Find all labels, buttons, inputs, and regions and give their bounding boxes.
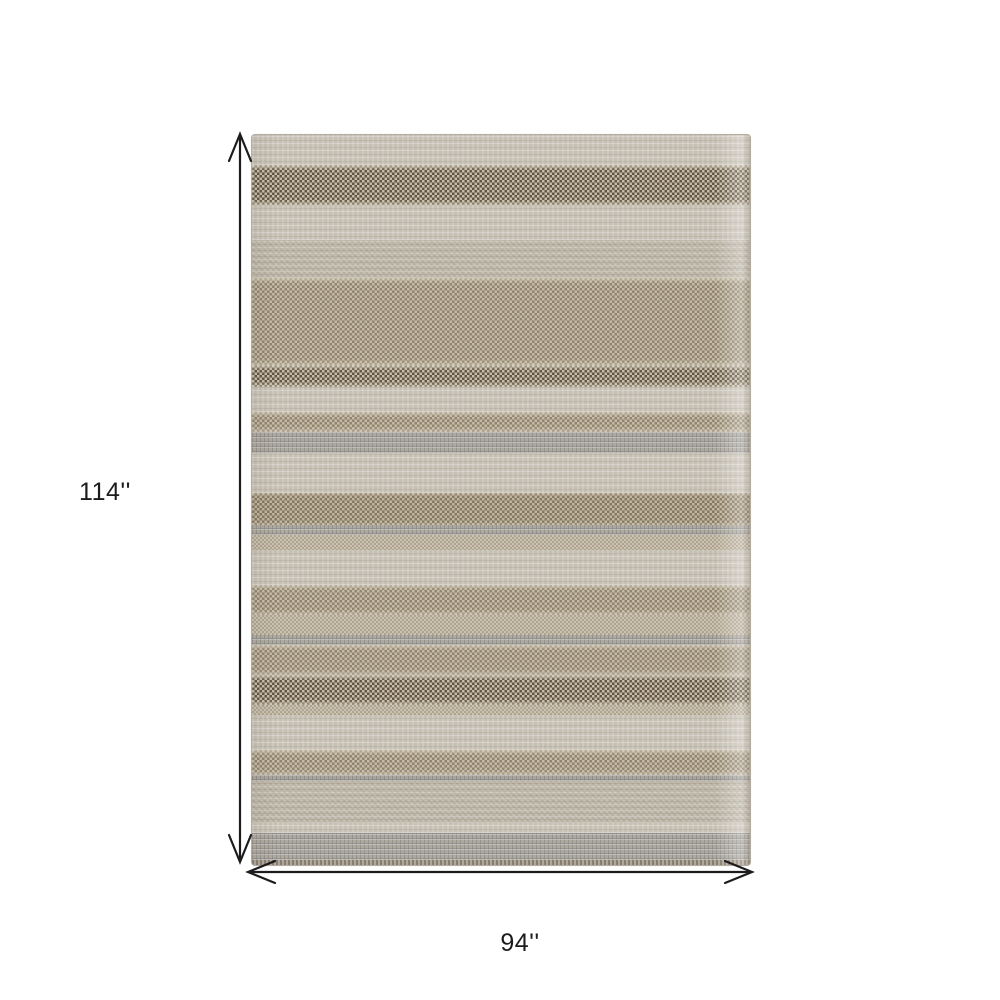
rug-stripe-light [252, 453, 750, 493]
height-dimension-label: 114'' [50, 478, 160, 507]
rug-stripe-dark [252, 365, 750, 387]
rug-stripe-pebble [252, 635, 750, 645]
rug-stripe-light [252, 135, 750, 165]
rug-stripe-tan [252, 535, 750, 550]
rug-stripe-dark [252, 165, 750, 205]
height-arrow [229, 134, 251, 862]
rug-stripe-pebble [252, 525, 750, 535]
rug-stripe-light [252, 715, 750, 750]
rug-stripe-medium [252, 412, 750, 432]
height-arrowhead-top [229, 134, 251, 161]
rug-stripe-pebble [252, 833, 750, 860]
rug-stripe-light [252, 550, 750, 585]
width-dimension-label: 94'' [465, 929, 575, 958]
rug-stripe-medium [252, 585, 750, 615]
rug-stripe-light [252, 823, 750, 833]
rug-stripe-light2 [252, 240, 750, 278]
rug-stripe-light2 [252, 781, 750, 823]
rug-stripe-edge [252, 860, 750, 865]
rug-stripe-dark [252, 675, 750, 705]
rug-stripe-medium [252, 750, 750, 775]
rug-stripe-medium [252, 645, 750, 675]
height-arrowhead-bottom [229, 835, 251, 862]
rug-stripe-mediumdark [252, 493, 750, 525]
rug-stripe-pebble [252, 432, 750, 453]
rug-stripe-tan [252, 705, 750, 715]
rug-stripe-tan [252, 615, 750, 635]
rug-stripe-light [252, 205, 750, 240]
rug-stripe-medium [252, 278, 750, 365]
rug-stripe-light [252, 387, 750, 412]
rug-image [252, 135, 750, 865]
dimension-diagram: 114'' 94'' [0, 0, 1000, 1000]
